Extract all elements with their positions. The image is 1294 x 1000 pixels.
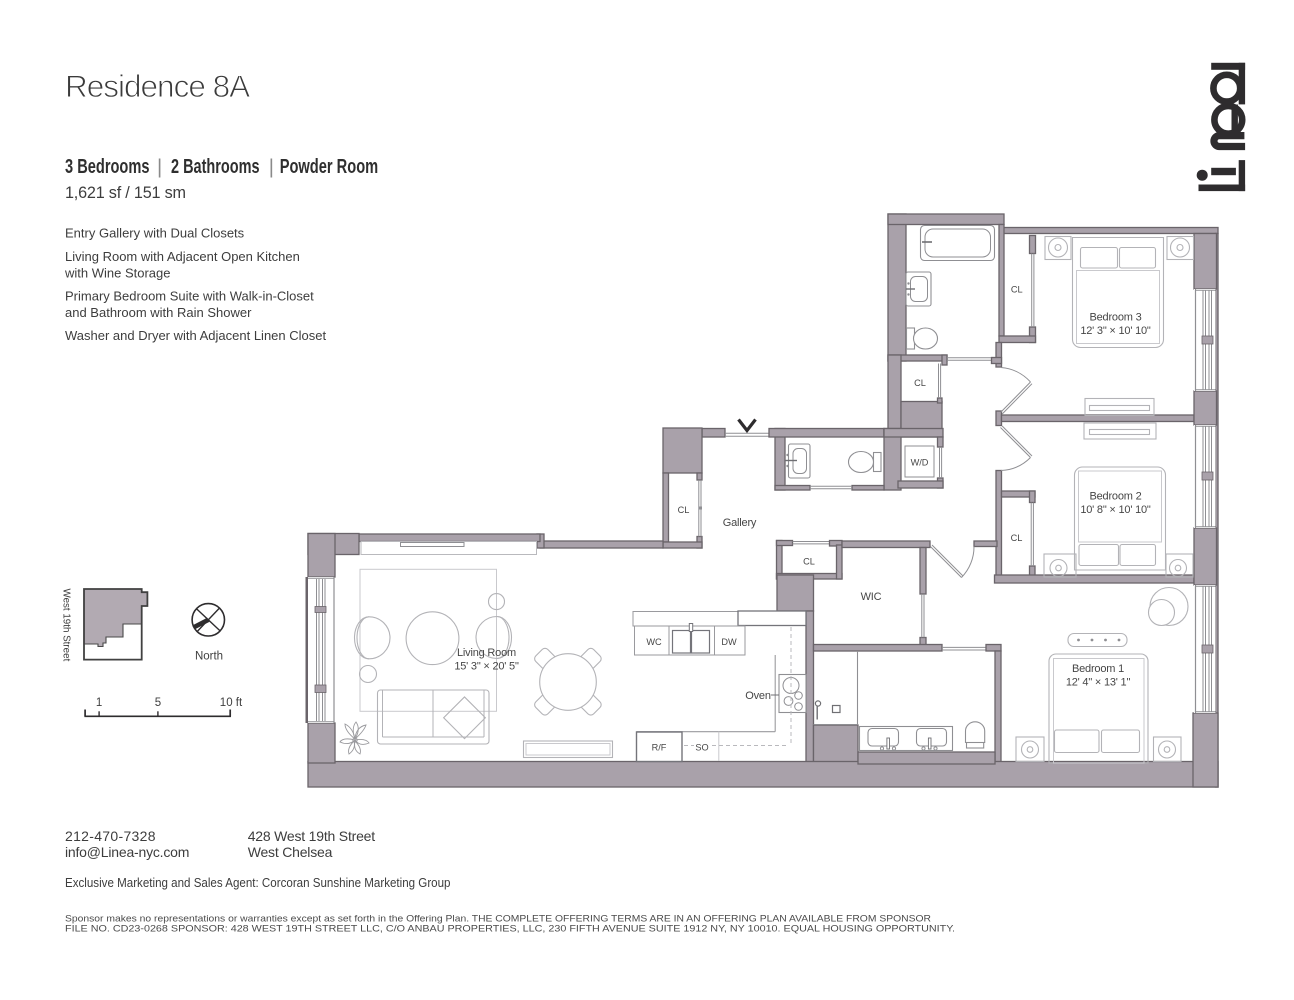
svg-text:CL: CL <box>678 505 690 515</box>
svg-text:212-470-7328: 212-470-7328 <box>65 828 156 844</box>
svg-text:2 Bathrooms: 2 Bathrooms <box>171 156 260 178</box>
svg-text:CL: CL <box>803 557 815 567</box>
svg-text:Entry Gallery with Dual Closet: Entry Gallery with Dual Closets <box>65 226 245 241</box>
svg-text:West 19th Street: West 19th Street <box>61 589 72 662</box>
svg-text:CL: CL <box>1011 285 1023 295</box>
svg-text:Washer and Dryer with Adjacent: Washer and Dryer with Adjacent Linen Clo… <box>65 328 326 343</box>
svg-text:|: | <box>269 157 274 179</box>
svg-text:W/D: W/D <box>911 458 929 468</box>
svg-text:with Wine Storage: with Wine Storage <box>64 265 171 280</box>
svg-text:Living Room with Adjacent Open: Living Room with Adjacent Open Kitchen <box>65 249 300 264</box>
svg-text:CL: CL <box>914 378 926 388</box>
svg-text:West Chelsea: West Chelsea <box>248 844 333 860</box>
svg-text:Bedroom 1: Bedroom 1 <box>1072 663 1124 675</box>
svg-text:|: | <box>157 157 162 179</box>
svg-text:WIC: WIC <box>861 591 882 603</box>
svg-text:1: 1 <box>96 697 102 709</box>
svg-text:and Bathroom with Rain Shower: and Bathroom with Rain Shower <box>65 305 252 320</box>
svg-text:10' 8" × 10' 10": 10' 8" × 10' 10" <box>1080 504 1151 516</box>
svg-text:15' 3" × 20' 5": 15' 3" × 20' 5" <box>454 661 519 673</box>
svg-text:10 ft: 10 ft <box>220 697 243 709</box>
svg-text:FILE NO. CD23-0268 SPONSOR: 42: FILE NO. CD23-0268 SPONSOR: 428 WEST 19T… <box>65 924 955 934</box>
svg-text:Bedroom 3: Bedroom 3 <box>1089 312 1141 324</box>
svg-text:Exclusive Marketing and Sales: Exclusive Marketing and Sales Agent: Cor… <box>65 876 451 890</box>
svg-text:North: North <box>195 651 223 663</box>
svg-text:Oven: Oven <box>745 690 771 702</box>
svg-text:5: 5 <box>155 697 161 709</box>
svg-text:info@Linea-nyc.com: info@Linea-nyc.com <box>65 844 189 860</box>
svg-text:Primary Bedroom Suite with Wal: Primary Bedroom Suite with Walk-in-Close… <box>65 289 314 304</box>
svg-text:SO: SO <box>695 743 708 753</box>
svg-text:Residence 8A: Residence 8A <box>65 68 250 104</box>
svg-text:3 Bedrooms: 3 Bedrooms <box>65 156 150 178</box>
svg-text:12' 4" × 13' 1": 12' 4" × 13' 1" <box>1066 677 1131 689</box>
svg-text:WC: WC <box>646 637 662 647</box>
svg-text:DW: DW <box>721 637 737 647</box>
svg-text:428 West 19th Street: 428 West 19th Street <box>248 828 376 844</box>
svg-text:Gallery: Gallery <box>723 517 757 529</box>
svg-text:Living Room: Living Room <box>457 647 516 659</box>
svg-text:Powder Room: Powder Room <box>280 156 379 178</box>
svg-text:1,621 sf / 151 sm: 1,621 sf / 151 sm <box>65 184 186 202</box>
svg-text:12' 3" × 10' 10": 12' 3" × 10' 10" <box>1080 325 1151 337</box>
svg-text:CL: CL <box>1011 533 1023 543</box>
svg-text:Bedroom 2: Bedroom 2 <box>1089 491 1141 503</box>
svg-text:Sponsor makes no representatio: Sponsor makes no representations or warr… <box>65 914 931 924</box>
svg-text:R/F: R/F <box>652 743 667 753</box>
